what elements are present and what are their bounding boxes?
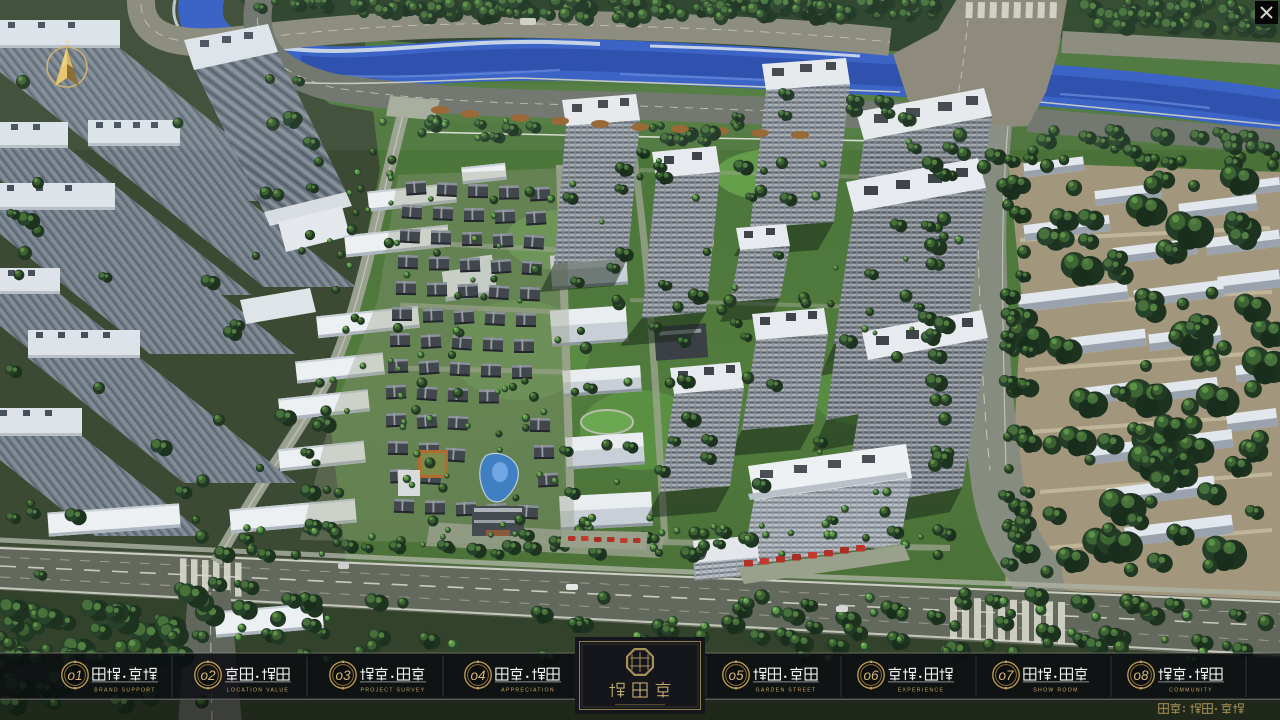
svg-text:BRAND SUPPORT: BRAND SUPPORT <box>94 688 155 694</box>
svg-text:GARDEN STREET: GARDEN STREET <box>756 688 817 694</box>
svg-text:o4: o4 <box>470 668 485 683</box>
svg-text:COMMUNITY: COMMUNITY <box>1169 688 1213 694</box>
svg-text:o8: o8 <box>1133 668 1149 683</box>
svg-text:PROJECT SURVEY: PROJECT SURVEY <box>361 688 426 694</box>
svg-text:SHOW ROOM: SHOW ROOM <box>1033 688 1078 694</box>
svg-text:APPRECIATION: APPRECIATION <box>501 688 555 694</box>
svg-text:o1: o1 <box>67 668 82 683</box>
svg-text:o3: o3 <box>335 668 351 683</box>
svg-text:o7: o7 <box>998 668 1014 683</box>
svg-text:o2: o2 <box>200 668 216 683</box>
svg-text:o6: o6 <box>863 668 879 683</box>
svg-text:EXPERIENCE: EXPERIENCE <box>898 688 944 694</box>
svg-text:N: N <box>64 40 69 47</box>
svg-text:o5: o5 <box>728 668 744 683</box>
svg-text:LOCATION VALUE: LOCATION VALUE <box>227 688 289 694</box>
